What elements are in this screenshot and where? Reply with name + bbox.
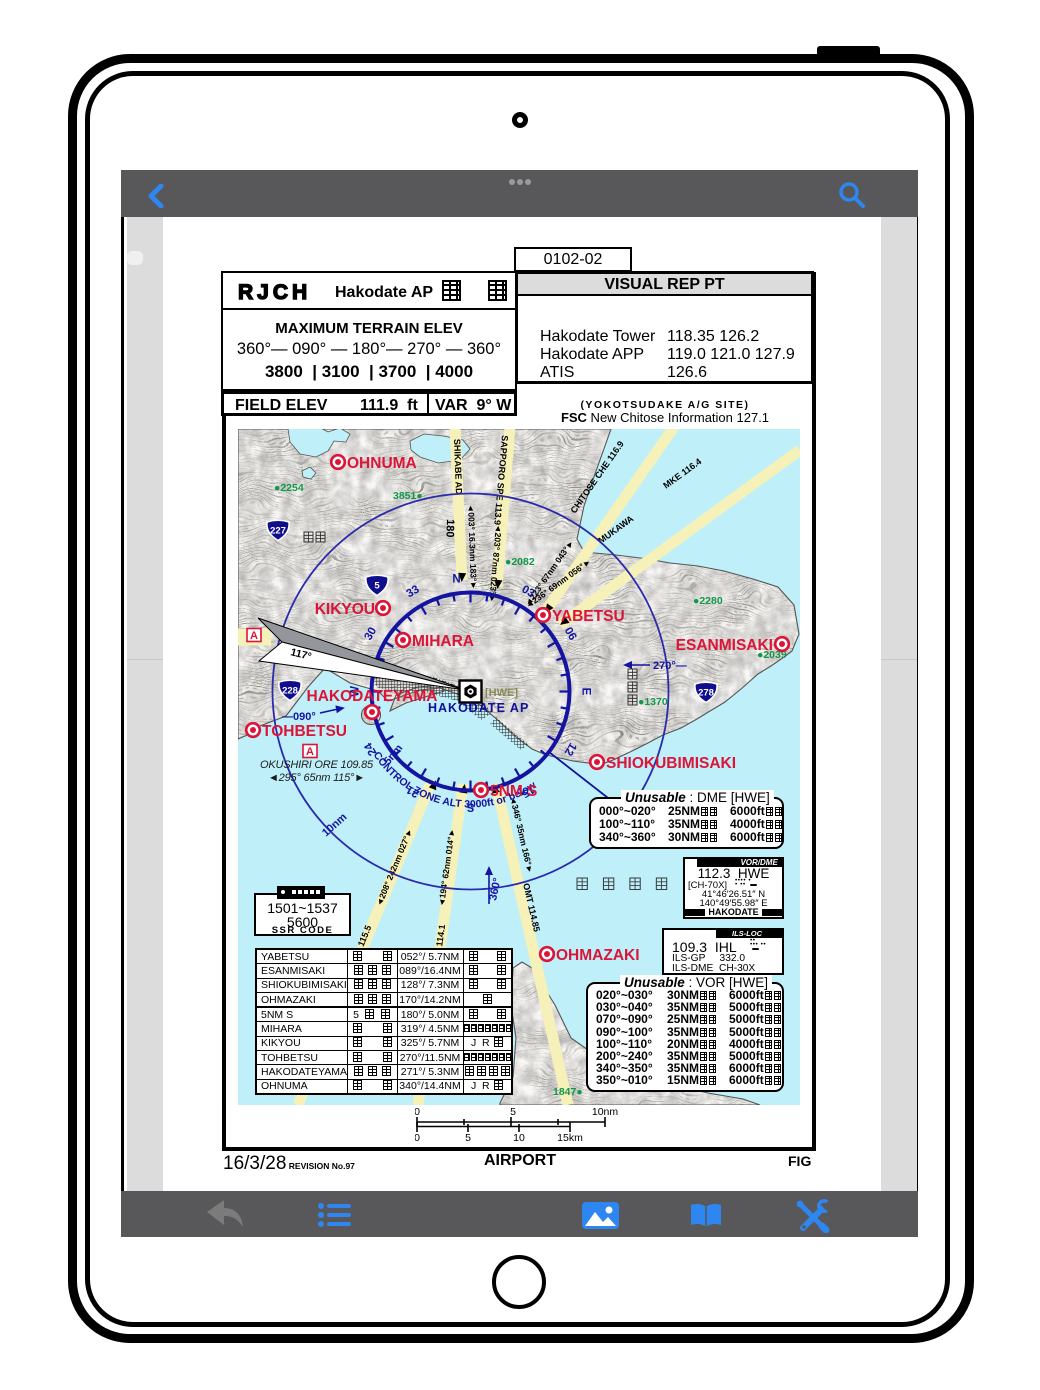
svg-text:●2082: ●2082: [505, 556, 535, 568]
svg-text:●1370: ●1370: [638, 696, 668, 708]
svg-text:5: 5: [510, 1106, 516, 1118]
svg-text:MIHARA: MIHARA: [412, 633, 474, 650]
svg-text:3851●: 3851●: [393, 490, 423, 502]
svg-text:0: 0: [415, 1132, 420, 1142]
svg-text:—090°: —090°: [282, 711, 316, 723]
svg-text:0: 0: [415, 1106, 420, 1118]
svg-text:15km: 15km: [557, 1132, 583, 1142]
svg-text:A: A: [250, 630, 258, 642]
svg-text:10: 10: [513, 1132, 525, 1142]
svg-text:5NM S: 5NM S: [490, 783, 537, 800]
svg-text:TOHBETSU: TOHBETSU: [262, 723, 347, 740]
svg-text:KIKYOU: KIKYOU: [315, 601, 375, 618]
svg-text:OHNUMA: OHNUMA: [347, 455, 417, 472]
svg-text:OKUSHIRI ORE 109.85: OKUSHIRI ORE 109.85: [260, 759, 374, 771]
svg-text:E: E: [580, 688, 592, 696]
svg-text:HAKODATE AP: HAKODATE AP: [428, 701, 529, 715]
svg-text:SHIKABE AD: SHIKABE AD: [452, 439, 464, 495]
svg-text:10nm: 10nm: [592, 1106, 619, 1118]
svg-text:[HWE]: [HWE]: [485, 687, 518, 699]
svg-text:◄295° 65nm 115°►: ◄295° 65nm 115°►: [268, 772, 365, 784]
svg-text:180: 180: [443, 519, 456, 538]
svg-text:SHIOKUBIMISAKI: SHIOKUBIMISAKI: [606, 755, 736, 772]
svg-text:1847●: 1847●: [553, 1086, 583, 1098]
svg-text:HAKODATEYAMA: HAKODATEYAMA: [307, 688, 438, 705]
svg-text:A: A: [306, 746, 314, 758]
svg-text:ESANMISAKI: ESANMISAKI: [676, 637, 773, 654]
svg-text:228: 228: [282, 686, 298, 697]
svg-text:OHMAZAKI: OHMAZAKI: [556, 947, 640, 964]
svg-text:5: 5: [465, 1132, 471, 1142]
svg-text:278: 278: [698, 688, 714, 699]
svg-text:●2254: ●2254: [274, 482, 304, 494]
svg-text:N: N: [452, 574, 460, 586]
svg-text:YABETSU: YABETSU: [552, 608, 625, 625]
svg-text:●2280: ●2280: [693, 595, 723, 607]
svg-text:270°—: 270°—: [653, 660, 687, 672]
svg-text:5: 5: [374, 581, 380, 592]
svg-text:227: 227: [270, 526, 286, 537]
